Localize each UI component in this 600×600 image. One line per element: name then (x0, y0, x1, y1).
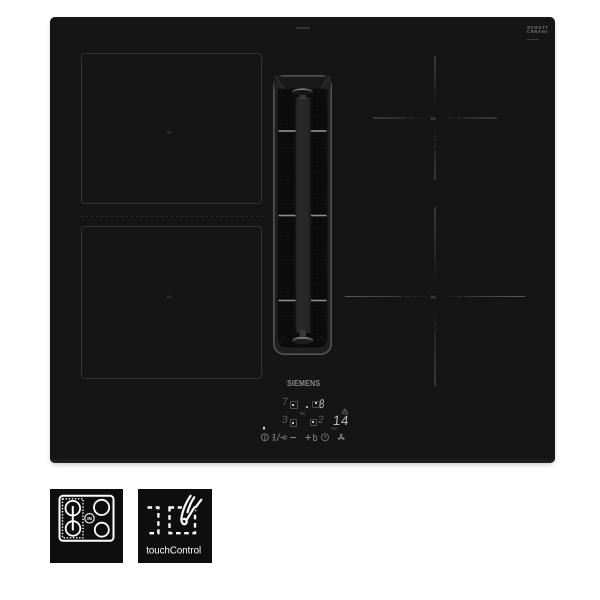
svg-text:IN: IN (87, 516, 92, 521)
svg-text:touchControl: touchControl (146, 545, 201, 556)
